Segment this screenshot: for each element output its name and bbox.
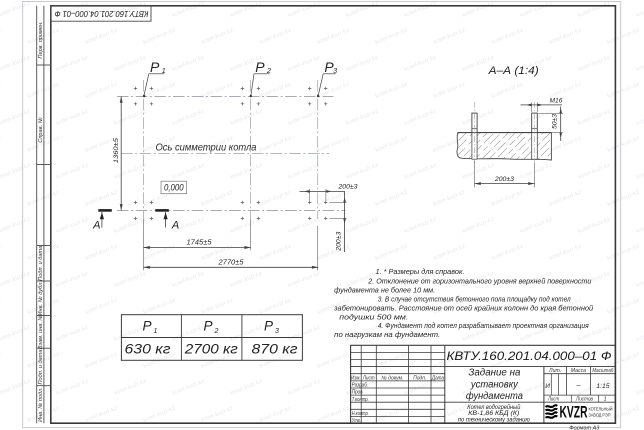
svg-text:1745±5: 1745±5 bbox=[187, 240, 212, 247]
svg-text:2: 2 bbox=[214, 328, 219, 335]
svg-text:Р: Р bbox=[150, 59, 160, 75]
svg-text:Р: Р bbox=[264, 319, 273, 334]
svg-text:Инв. № дубл.: Инв. № дубл. bbox=[38, 281, 44, 315]
svg-text:№ докум.: № докум. bbox=[381, 375, 403, 381]
svg-text:–: – bbox=[575, 383, 580, 390]
svg-text:2. Отклонение от горизонтально: 2. Отклонение от горизонтального уровня … bbox=[367, 277, 591, 285]
svg-text:Пров.: Пров. bbox=[352, 390, 364, 396]
svg-text:Лист: Лист bbox=[362, 375, 376, 381]
svg-text:Р: Р bbox=[255, 59, 265, 75]
svg-text:200±3: 200±3 bbox=[494, 176, 514, 183]
svg-text:Формат А3: Формат А3 bbox=[569, 425, 600, 430]
svg-text:А: А bbox=[171, 220, 179, 232]
svg-text:подушки 500 мм.: подушки 500 мм. bbox=[339, 313, 408, 321]
svg-text:КОТЕЛЬНЫЙ: КОТЕЛЬНЫЙ bbox=[589, 405, 613, 412]
svg-text:Взам. инв. №: Взам. инв. № bbox=[38, 315, 44, 350]
svg-text:Ось симметрии котла: Ось симметрии котла bbox=[156, 142, 258, 153]
svg-text:Дата: Дата bbox=[431, 375, 444, 381]
svg-text:1. * Размеры для справок.: 1. * Размеры для справок. bbox=[376, 268, 465, 276]
svg-text:0,000: 0,000 bbox=[164, 183, 184, 193]
svg-text:Лист: Лист bbox=[547, 397, 559, 403]
svg-text:1: 1 bbox=[603, 397, 606, 403]
svg-text:А: А bbox=[92, 220, 100, 232]
svg-text:870 кг: 870 кг bbox=[252, 342, 298, 357]
svg-text:КВТУ.160.201.04.000–01 Ф: КВТУ.160.201.04.000–01 Ф bbox=[54, 9, 148, 19]
svg-text:50±3: 50±3 bbox=[552, 113, 559, 129]
svg-text:200±3: 200±3 bbox=[337, 183, 357, 190]
svg-text:И: И bbox=[545, 383, 550, 390]
svg-text:Лит.: Лит. bbox=[548, 368, 561, 374]
svg-text:фундамента: фундамента bbox=[466, 391, 524, 402]
svg-text:Справ. №: Справ. № bbox=[38, 117, 44, 142]
svg-text:Подп.: Подп. bbox=[413, 375, 426, 381]
svg-text:3. В случае отсутствия бетонно: 3. В случае отсутствия бетонного пола пл… bbox=[378, 295, 571, 303]
svg-text:1360±5: 1360±5 bbox=[113, 138, 120, 163]
svg-text:2770±5: 2770±5 bbox=[217, 259, 243, 266]
svg-text:Масса: Масса bbox=[571, 368, 586, 374]
svg-text:по техническому заданию: по техническому заданию bbox=[458, 417, 530, 424]
svg-text:3: 3 bbox=[275, 328, 279, 335]
svg-text:ЗАВОД РЭП: ЗАВОД РЭП bbox=[589, 413, 611, 418]
svg-text:Р: Р bbox=[143, 319, 152, 334]
svg-text:Утв.: Утв. bbox=[352, 418, 361, 424]
svg-text:1:15: 1:15 bbox=[596, 383, 609, 390]
svg-text:установку: установку bbox=[470, 379, 519, 390]
svg-text:забетонировать. Расстояние от: забетонировать. Расстояние от осей крайн… bbox=[333, 304, 593, 312]
svg-text:Разраб.: Разраб. bbox=[352, 383, 368, 389]
svg-text:630 кг: 630 кг bbox=[125, 342, 171, 357]
svg-text:Подп. и дата: Подп. и дата bbox=[38, 246, 44, 281]
svg-text:Р: Р bbox=[204, 319, 213, 334]
svg-text:1: 1 bbox=[154, 328, 158, 335]
svg-text:4. Фундамент под котел разраба: 4. Фундамент под котел разрабатывает про… bbox=[378, 322, 589, 330]
svg-text:Н.контр.: Н.контр. bbox=[352, 411, 369, 417]
svg-text:М16: М16 bbox=[550, 97, 563, 104]
svg-text:2700 кг: 2700 кг bbox=[184, 342, 239, 357]
svg-text:Масштаб: Масштаб bbox=[592, 368, 614, 374]
svg-text:Инв. № подл.: Инв. № подл. bbox=[38, 387, 44, 422]
svg-text:фундамента не более 10 мм.: фундамента не более 10 мм. bbox=[334, 286, 435, 294]
svg-text:KVZR: KVZR bbox=[560, 404, 588, 422]
svg-text:Изм.: Изм. bbox=[351, 375, 361, 381]
svg-text:Листов: Листов bbox=[575, 397, 593, 403]
svg-text:Т.контр.: Т.контр. bbox=[352, 397, 369, 403]
svg-text:КВТУ.160.201.04.000–01 Ф: КВТУ.160.201.04.000–01 Ф bbox=[447, 349, 612, 363]
svg-text:по нагрузкам на фундамент.: по нагрузкам на фундамент. bbox=[334, 331, 440, 339]
svg-text:А–А (1:4): А–А (1:4) bbox=[488, 65, 539, 77]
svg-text:Перв. примен.: Перв. примен. bbox=[38, 21, 44, 58]
svg-text:Подп. и дата: Подп. и дата bbox=[38, 349, 44, 384]
svg-text:Задание на: Задание на bbox=[468, 368, 521, 379]
svg-text:200±3: 200±3 bbox=[336, 231, 343, 251]
